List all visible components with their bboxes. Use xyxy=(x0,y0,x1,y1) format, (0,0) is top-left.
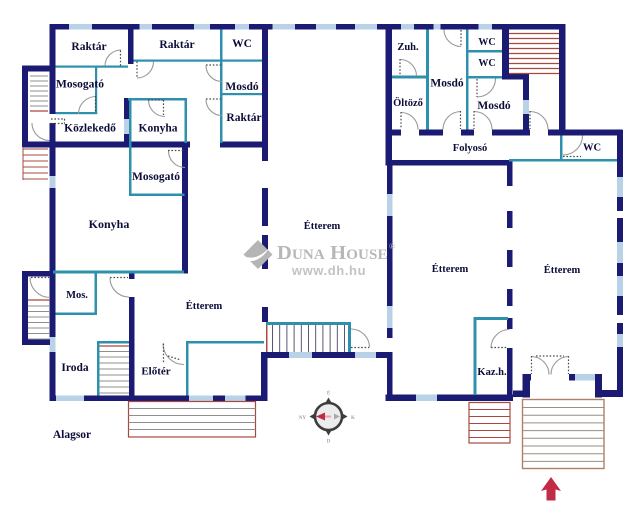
svg-text:Mosogató: Mosogató xyxy=(132,171,180,183)
svg-text:WC: WC xyxy=(232,38,252,50)
svg-text:Étterem: Étterem xyxy=(544,264,581,276)
svg-text:Konyha: Konyha xyxy=(139,123,178,135)
svg-text:Raktár: Raktár xyxy=(71,41,106,53)
svg-text:D: D xyxy=(327,440,331,445)
svg-text:Konyha: Konyha xyxy=(89,217,130,231)
svg-text:Étterem: Étterem xyxy=(432,263,469,275)
svg-text:Mos.: Mos. xyxy=(66,290,88,301)
svg-text:Mosdó: Mosdó xyxy=(430,78,463,90)
svg-text:K: K xyxy=(351,416,355,421)
svg-text:Kaz.h.: Kaz.h. xyxy=(477,367,507,378)
svg-text:Alagsor: Alagsor xyxy=(53,429,91,441)
svg-text:Mosogató: Mosogató xyxy=(56,79,104,91)
svg-text:Előtér: Előtér xyxy=(141,366,170,378)
svg-text:www.dh.hu: www.dh.hu xyxy=(291,263,366,278)
svg-text:®: ® xyxy=(389,242,395,251)
svg-text:Zuh.: Zuh. xyxy=(397,42,419,53)
svg-text:NY: NY xyxy=(299,416,307,421)
svg-text:Öltöző: Öltöző xyxy=(393,96,423,109)
svg-text:WC: WC xyxy=(478,58,495,69)
svg-text:Mosdó: Mosdó xyxy=(477,100,510,112)
svg-text:Mosdó: Mosdó xyxy=(225,81,258,93)
svg-text:Étterem: Étterem xyxy=(304,220,341,232)
svg-text:Étterem: Étterem xyxy=(186,300,223,312)
svg-text:Iroda: Iroda xyxy=(61,362,89,374)
svg-text:Raktár: Raktár xyxy=(226,112,261,124)
svg-text:Raktár: Raktár xyxy=(159,39,194,51)
svg-text:Közlekedő: Közlekedő xyxy=(64,123,116,135)
svg-text:WC: WC xyxy=(583,143,601,154)
svg-text:WC: WC xyxy=(478,37,495,48)
svg-text:Folyosó: Folyosó xyxy=(453,143,487,154)
